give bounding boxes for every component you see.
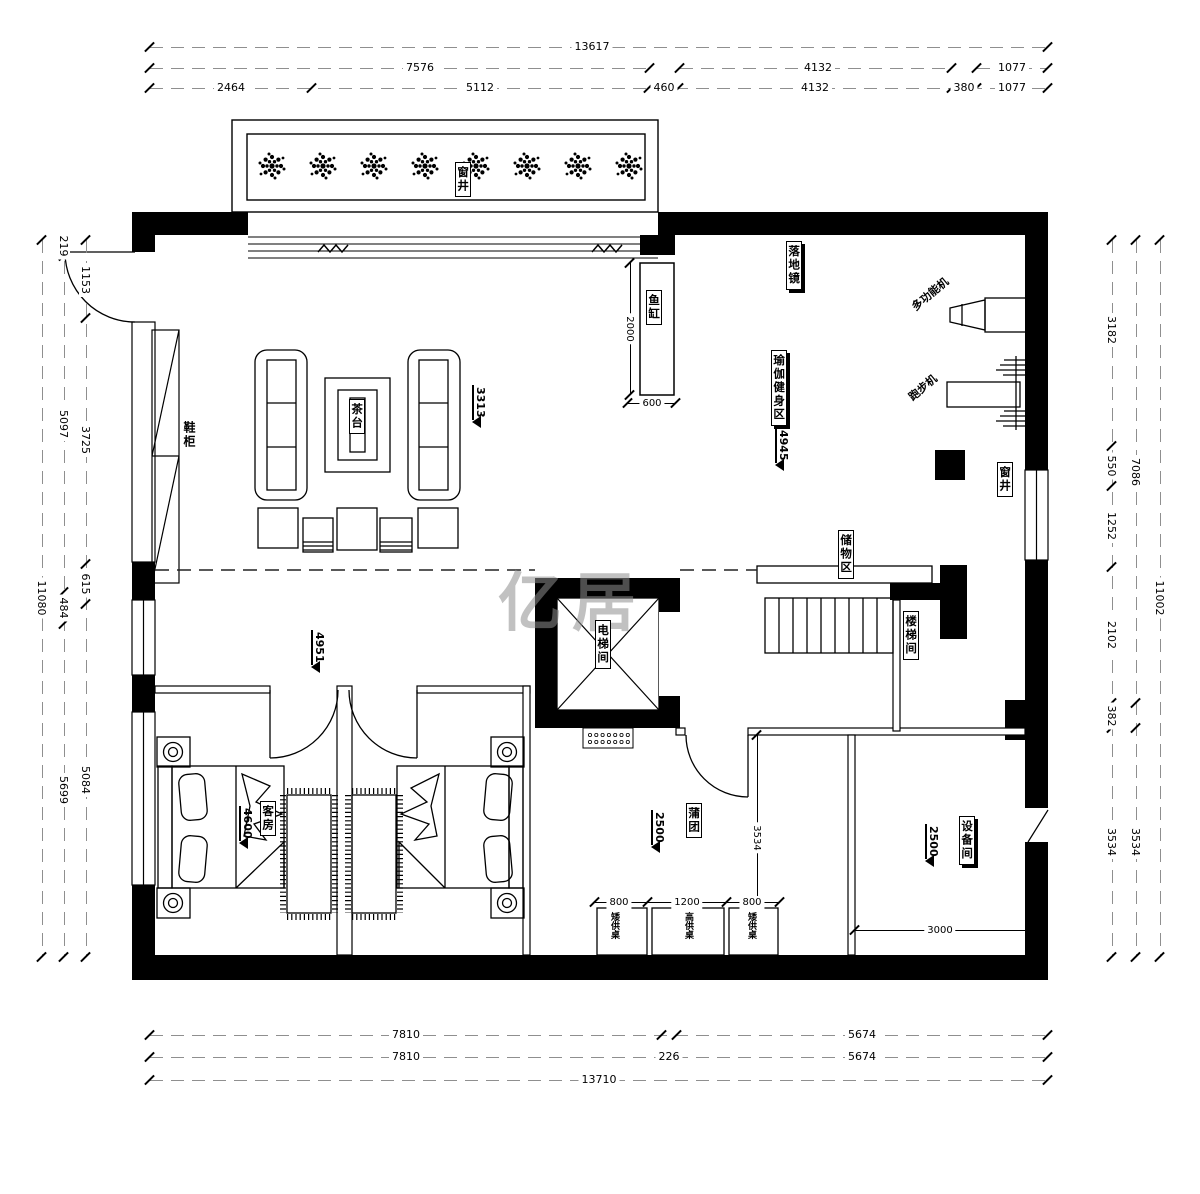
- elevation-value: 2500: [925, 824, 939, 859]
- dim-label: 550: [1105, 453, 1118, 480]
- fish-tank: [640, 263, 674, 395]
- dim-label: 219: [57, 233, 70, 260]
- label-prayer-cushion: 蒲团: [686, 803, 702, 838]
- elevation-triangle-icon: [775, 459, 784, 471]
- label-low-altar-left: 矮供桌: [608, 912, 621, 939]
- label-yoga-area: 瑜伽健身区: [771, 350, 787, 426]
- dim-label: 11080: [35, 578, 48, 619]
- dim-label: 1077: [995, 61, 1029, 74]
- dim-line: [86, 240, 87, 957]
- elevation-value: 4600: [239, 806, 253, 841]
- elevation-value: 3313: [472, 385, 486, 420]
- dim-label: 13710: [579, 1073, 620, 1086]
- dim-label: 3182: [1105, 313, 1118, 347]
- dim-label: 13617: [572, 40, 613, 53]
- terrace-plants: [259, 153, 643, 180]
- dim-label: 7810: [389, 1028, 423, 1041]
- dim-line: [150, 68, 650, 69]
- dim-label: 1153: [79, 263, 92, 297]
- dim-label: 3534: [1129, 825, 1142, 859]
- dim-label: 7086: [1129, 455, 1142, 489]
- elevation-value: 2500: [651, 810, 665, 845]
- dim-label: 4132: [798, 81, 832, 94]
- dim-label: 1077: [995, 81, 1029, 94]
- elevation-triangle-icon: [925, 855, 934, 867]
- elevation-value: 4945: [775, 428, 789, 463]
- dim-line: [150, 1035, 1048, 1036]
- watermark: 亿居: [498, 552, 646, 644]
- shoe-cabinet: [152, 330, 179, 583]
- dim-label: 484: [57, 595, 70, 622]
- label-storage-area: 储物区: [838, 530, 854, 579]
- dim-label: 800: [606, 896, 631, 909]
- label-low-altar-right: 矮供桌: [745, 912, 758, 939]
- label-equipment-room: 设备间: [959, 816, 975, 865]
- label-shoe-cabinet: 鞋柜: [181, 421, 198, 449]
- elevation-marker-prayer: 2500: [651, 810, 666, 853]
- dim-label: 3000: [924, 924, 955, 937]
- elevation-marker-yoga: 4945: [775, 428, 790, 471]
- dim-label: 7810: [389, 1050, 423, 1063]
- dim-label: 1200: [671, 896, 702, 909]
- label-light-well-right: 窗井: [997, 462, 1013, 497]
- dim-label: 2000: [623, 313, 636, 344]
- dim-label: 460: [651, 81, 678, 94]
- label-stair-room: 楼梯间: [903, 611, 919, 660]
- dim-label: 4132: [801, 61, 835, 74]
- dim-label: 7576: [403, 61, 437, 74]
- elevation-triangle-icon: [651, 841, 660, 853]
- dim-label: 800: [739, 896, 764, 909]
- elevation-triangle-icon: [311, 661, 320, 673]
- dim-label: 2102: [1105, 618, 1118, 652]
- elevation-marker-equipment: 2500: [925, 824, 940, 867]
- living-room-furniture: [255, 350, 460, 552]
- dim-label: 600: [639, 397, 664, 410]
- label-fish-tank: 鱼缸: [646, 290, 662, 325]
- dim-label: 226: [656, 1050, 683, 1063]
- label-high-altar: 高供桌: [682, 912, 695, 939]
- dim-label: 5674: [845, 1028, 879, 1041]
- dim-label: 380: [951, 81, 978, 94]
- dim-label: 615: [79, 571, 92, 598]
- elevation-marker-hallway: 4951: [311, 630, 326, 673]
- dim-label: 3534: [1105, 825, 1118, 859]
- dim-label: 3534: [750, 822, 763, 853]
- label-elevator-room: 电梯间: [595, 620, 611, 669]
- dim-label: 3725: [79, 423, 92, 457]
- dim-line: [150, 1057, 1048, 1058]
- elevation-marker-guest: 4600: [239, 806, 254, 849]
- dim-label: 11002: [1153, 578, 1166, 619]
- entry-door: [65, 252, 135, 322]
- bedroom-right: [348, 737, 524, 918]
- dim-line: [150, 88, 1048, 89]
- label-guest-room: 客房: [260, 801, 276, 836]
- elevation-triangle-icon: [239, 837, 248, 849]
- dim-label: 5097: [57, 407, 70, 441]
- label-light-well-top: 窗井: [455, 162, 471, 197]
- dim-label: 5674: [845, 1050, 879, 1063]
- label-floor-mirror: 落地镜: [786, 241, 802, 290]
- label-tea-table: 茶台: [349, 399, 365, 434]
- dim-line: [757, 735, 758, 902]
- elevation-triangle-icon: [472, 416, 481, 428]
- elevation-value: 4951: [311, 630, 325, 665]
- dim-label: 5699: [57, 773, 70, 807]
- dim-label: 382: [1105, 703, 1118, 730]
- dim-label: 2464: [214, 81, 248, 94]
- elevation-marker-living: 3313: [472, 385, 487, 428]
- dim-label: 5112: [463, 81, 497, 94]
- dim-label: 1252: [1105, 509, 1118, 543]
- dim-label: 5084: [79, 763, 92, 797]
- gym-equipment: [947, 298, 1036, 430]
- terrace: [232, 120, 658, 258]
- floor-plan-canvas: 13617 7576 4132 1077 2464 5112 460 4132 …: [0, 0, 1200, 1194]
